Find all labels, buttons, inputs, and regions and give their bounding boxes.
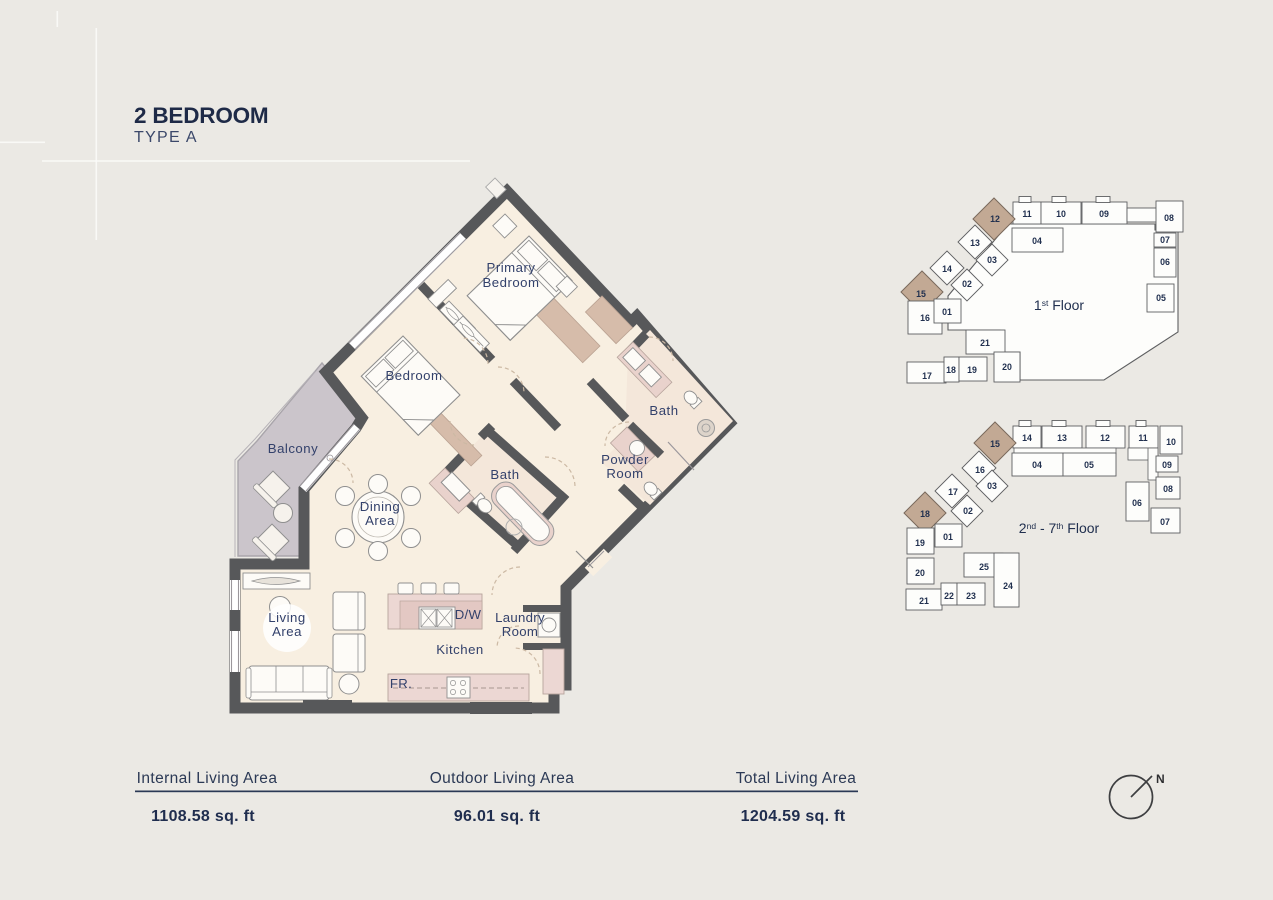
svg-text:1108.58 sq. ft: 1108.58 sq. ft xyxy=(151,808,255,825)
svg-text:18: 18 xyxy=(920,509,930,519)
svg-text:19: 19 xyxy=(915,538,925,548)
svg-text:08: 08 xyxy=(1163,484,1173,494)
svg-text:17: 17 xyxy=(922,371,932,381)
svg-text:16: 16 xyxy=(920,313,930,323)
svg-text:01: 01 xyxy=(943,532,953,542)
svg-text:21: 21 xyxy=(919,596,929,606)
svg-text:07: 07 xyxy=(1160,235,1170,245)
svg-text:09: 09 xyxy=(1099,209,1109,219)
svg-text:01: 01 xyxy=(942,307,952,317)
svg-text:13: 13 xyxy=(1057,433,1067,443)
svg-text:03: 03 xyxy=(987,481,997,491)
svg-text:21: 21 xyxy=(980,338,990,348)
svg-text:10: 10 xyxy=(1056,209,1066,219)
svg-text:02: 02 xyxy=(963,506,973,516)
svg-text:Kitchen: Kitchen xyxy=(436,642,484,657)
svg-text:04: 04 xyxy=(1032,236,1042,246)
svg-text:22: 22 xyxy=(944,591,954,601)
svg-text:Bath: Bath xyxy=(649,403,678,418)
svg-text:Primary: Primary xyxy=(487,260,536,275)
svg-text:Balcony: Balcony xyxy=(268,441,318,456)
svg-text:Internal Living Area: Internal Living Area xyxy=(137,770,278,787)
svg-text:13: 13 xyxy=(970,238,980,248)
svg-text:10: 10 xyxy=(1166,437,1176,447)
svg-text:20: 20 xyxy=(915,568,925,578)
svg-text:05: 05 xyxy=(1156,293,1166,303)
svg-text:23: 23 xyxy=(966,591,976,601)
svg-text:25: 25 xyxy=(979,562,989,572)
svg-text:24: 24 xyxy=(1003,581,1013,591)
svg-text:03: 03 xyxy=(987,255,997,265)
svg-text:Bedroom: Bedroom xyxy=(385,368,442,383)
svg-text:11: 11 xyxy=(1138,433,1147,443)
svg-text:15: 15 xyxy=(990,439,1000,449)
svg-text:12: 12 xyxy=(990,214,1000,224)
svg-text:11: 11 xyxy=(1022,209,1031,219)
svg-text:Living: Living xyxy=(268,610,305,625)
svg-text:09: 09 xyxy=(1162,460,1172,470)
svg-text:18: 18 xyxy=(946,365,956,375)
svg-text:20: 20 xyxy=(1002,362,1012,372)
svg-text:Bedroom: Bedroom xyxy=(482,275,539,290)
svg-text:14: 14 xyxy=(1022,433,1032,443)
svg-text:Area: Area xyxy=(272,624,302,639)
svg-text:Total Living Area: Total Living Area xyxy=(736,770,857,787)
svg-text:N: N xyxy=(1156,772,1165,786)
svg-text:Room: Room xyxy=(606,466,643,481)
svg-text:Area: Area xyxy=(365,513,395,528)
svg-text:TYPE A: TYPE A xyxy=(134,129,198,146)
svg-text:Powder: Powder xyxy=(601,452,649,467)
svg-text:FR.: FR. xyxy=(390,676,412,691)
svg-text:04: 04 xyxy=(1032,460,1042,470)
svg-text:15: 15 xyxy=(916,289,926,299)
svg-text:2 BEDROOM: 2 BEDROOM xyxy=(134,103,268,128)
svg-text:19: 19 xyxy=(967,365,977,375)
svg-text:Room: Room xyxy=(502,624,538,639)
svg-text:08: 08 xyxy=(1164,213,1174,223)
svg-text:12: 12 xyxy=(1100,433,1110,443)
svg-text:Bath: Bath xyxy=(490,467,519,482)
svg-text:96.01 sq. ft: 96.01 sq. ft xyxy=(454,808,541,825)
svg-text:02: 02 xyxy=(962,279,972,289)
svg-text:06: 06 xyxy=(1160,257,1170,267)
svg-text:Outdoor Living Area: Outdoor Living Area xyxy=(430,770,575,787)
svg-text:D/W: D/W xyxy=(455,607,482,622)
svg-text:16: 16 xyxy=(975,465,985,475)
svg-text:Dining: Dining xyxy=(360,499,400,514)
svg-text:17: 17 xyxy=(948,487,958,497)
svg-text:1st Floor: 1st Floor xyxy=(1034,297,1085,313)
svg-text:06: 06 xyxy=(1132,498,1142,508)
svg-text:07: 07 xyxy=(1160,517,1170,527)
svg-text:14: 14 xyxy=(942,264,952,274)
svg-text:1204.59 sq. ft: 1204.59 sq. ft xyxy=(741,808,846,825)
svg-text:Laundry: Laundry xyxy=(495,610,545,625)
svg-text:05: 05 xyxy=(1084,460,1094,470)
